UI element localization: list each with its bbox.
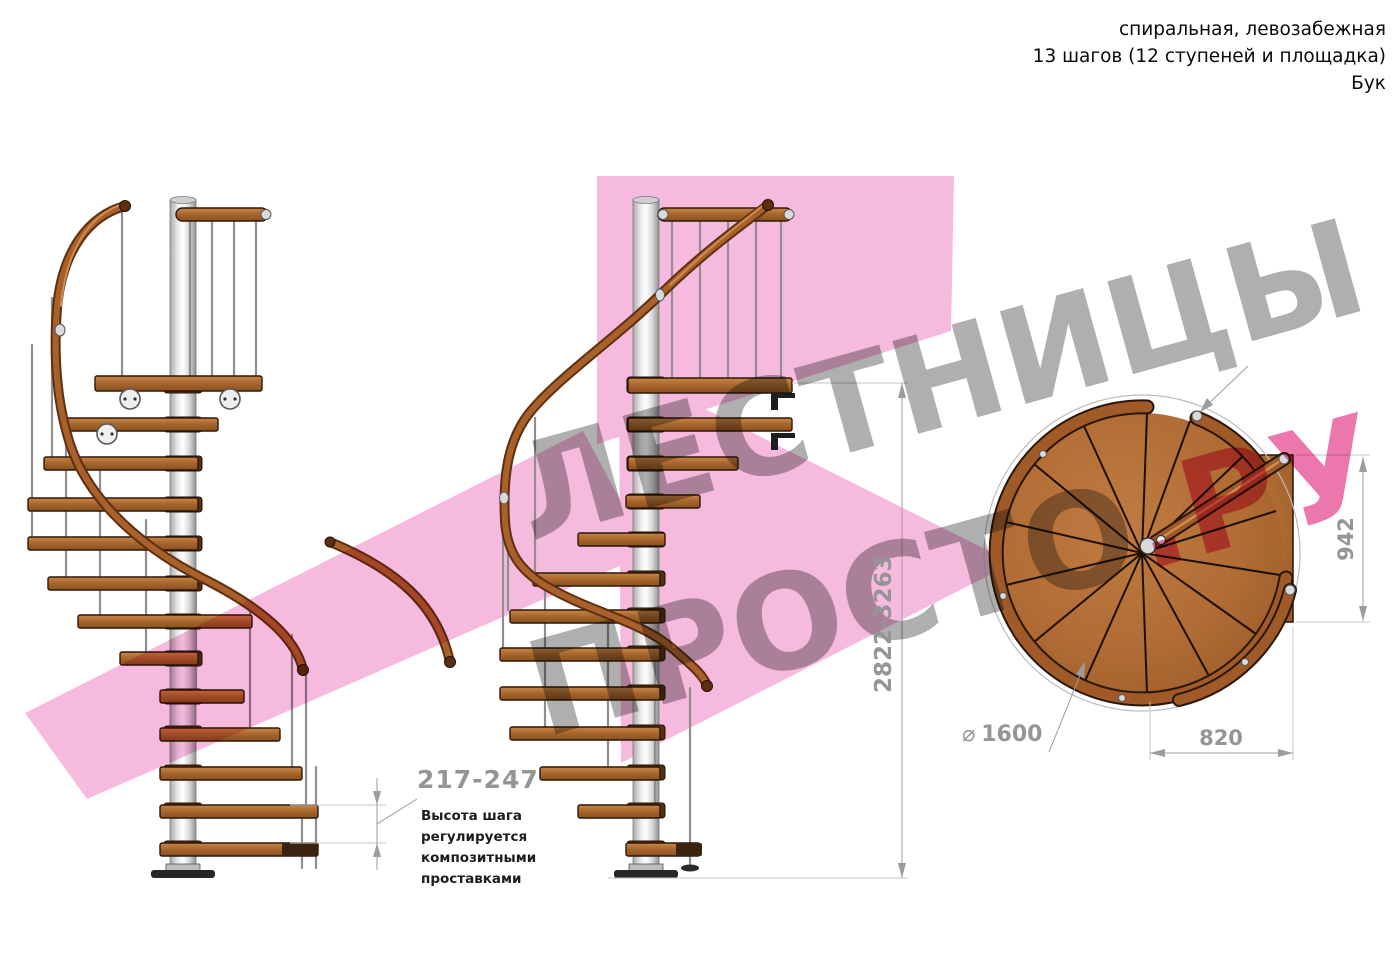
- step: [66, 418, 218, 431]
- header-type: спиральная, левозабежная: [1033, 16, 1386, 43]
- top-handrail: [176, 208, 271, 221]
- dimension-total-height: 2822-3263: [871, 569, 897, 693]
- dimension-platform-depth: 942: [1334, 499, 1358, 579]
- header-material: Бук: [1033, 70, 1386, 97]
- platform-board: [95, 376, 262, 391]
- step: [160, 767, 302, 780]
- rail-end-cap: [1192, 411, 1202, 421]
- dimension-diameter: ⌀1600: [962, 722, 1042, 747]
- step-dark-end: [676, 843, 702, 856]
- step-dark-end: [282, 843, 318, 856]
- top-handrail: [658, 208, 794, 221]
- step: [48, 577, 198, 590]
- dimension-step-height: 217-247: [417, 765, 539, 794]
- drawing-sheet: .step{fill:url(#wood);stroke:#2e1707;str…: [0, 0, 1400, 975]
- dimension-platform-width: 820: [1181, 726, 1261, 750]
- step: [44, 457, 198, 470]
- step: [28, 537, 198, 550]
- railing-balusters: [122, 212, 256, 376]
- step: [578, 805, 660, 818]
- pole-top-cap: [170, 197, 196, 204]
- title-block: спиральная, левозабежная 13 шагов (12 ст…: [1033, 16, 1386, 97]
- diameter-icon: ⌀: [962, 722, 975, 747]
- pole-base-flange: [151, 864, 215, 878]
- annotation-step-height: Высота шага регулируется композитными пр…: [421, 806, 536, 890]
- header-steps: 13 шагов (12 ступеней и площадка): [1033, 43, 1386, 70]
- step: [160, 805, 318, 818]
- step: [540, 767, 660, 780]
- pole-top-cap: [633, 197, 659, 204]
- rail-end-cap: [261, 210, 271, 220]
- pole-base-flange: [614, 864, 678, 878]
